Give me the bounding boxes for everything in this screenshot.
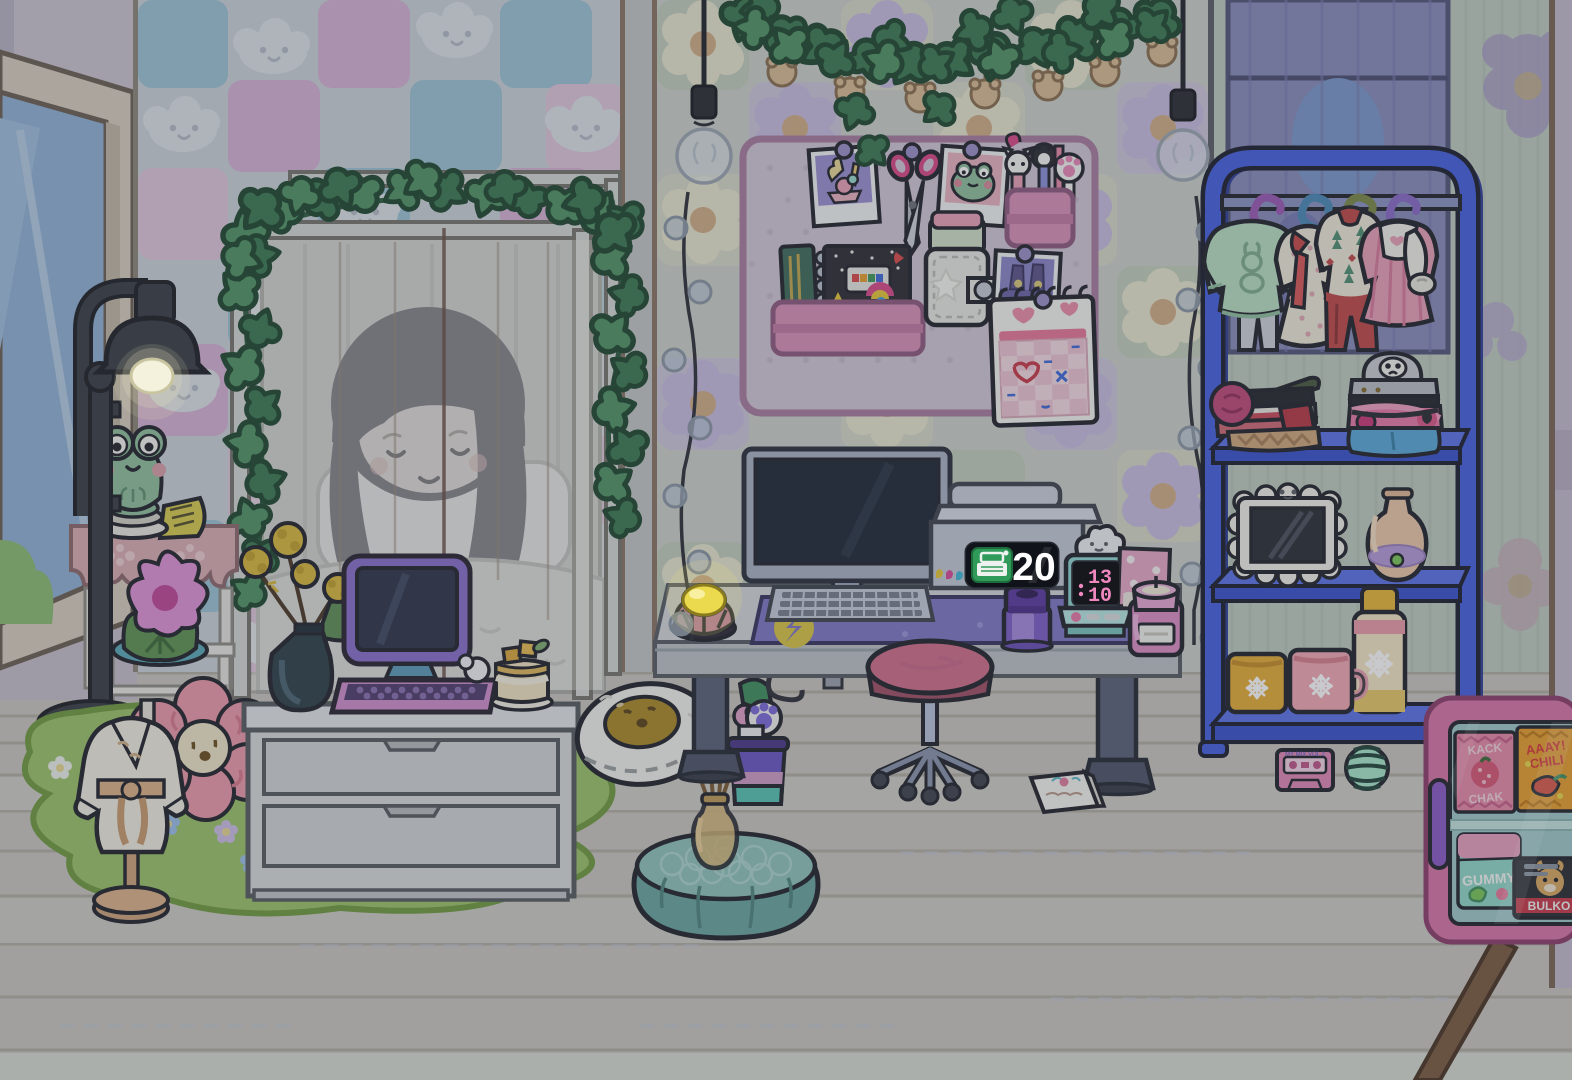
svg-text:10: 10 — [1088, 585, 1112, 608]
